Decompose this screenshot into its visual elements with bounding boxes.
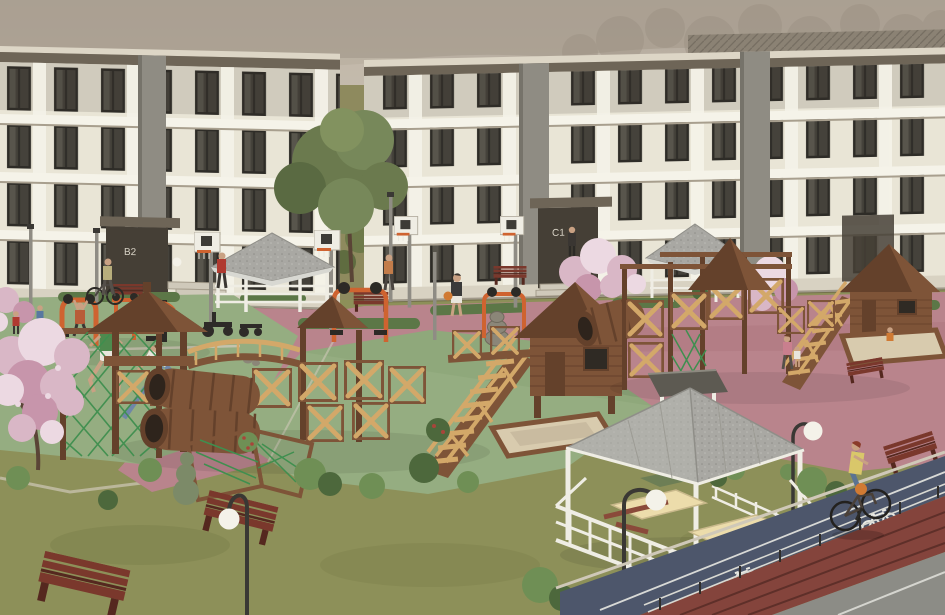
red-berry-bush-1 <box>238 432 258 452</box>
entrance-canopy <box>100 216 180 228</box>
tower-window <box>898 300 916 314</box>
hut-door <box>545 352 565 396</box>
toddler-in-sandbox <box>887 327 894 341</box>
red-berry-bush-3 <box>426 418 450 442</box>
lamp-globe <box>646 490 667 511</box>
tower-door <box>862 300 876 334</box>
light-pole-4 <box>433 252 437 340</box>
scene-render: B2 C1 <box>0 0 945 615</box>
render-canvas: B2 C1 <box>0 0 945 615</box>
lamp-globe <box>219 509 240 530</box>
entrance-canopy <box>530 197 612 209</box>
entrance-door-area <box>106 226 168 293</box>
basketball <box>444 292 453 301</box>
hut-window <box>584 348 608 370</box>
building-label-c1: C1 <box>552 228 565 239</box>
orange-bag <box>855 483 867 495</box>
building-label-b2: B2 <box>124 247 137 258</box>
lamp-globe <box>804 422 823 441</box>
